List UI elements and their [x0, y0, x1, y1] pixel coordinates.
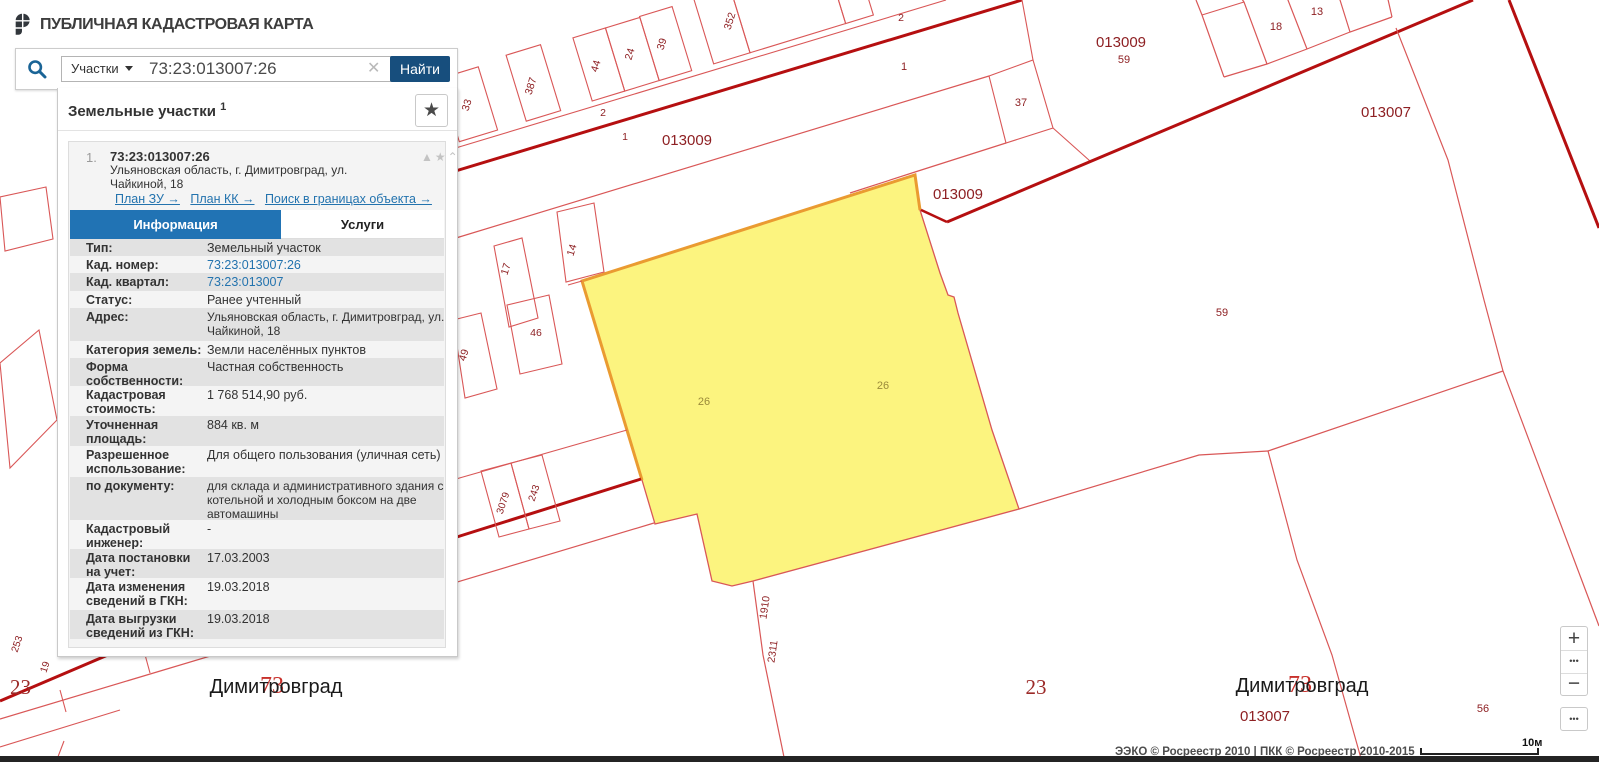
svg-text:1910: 1910: [757, 595, 772, 620]
svg-text:17: 17: [499, 262, 514, 277]
svg-text:24: 24: [623, 47, 638, 62]
svg-text:14: 14: [565, 243, 580, 258]
svg-text:39: 39: [655, 37, 670, 52]
svg-text:253: 253: [10, 634, 26, 654]
svg-text:19: 19: [39, 660, 53, 674]
svg-text:23: 23: [10, 675, 31, 699]
svg-text:013007: 013007: [1361, 104, 1411, 121]
svg-text:Димитровград: Димитровград: [210, 676, 343, 698]
svg-text:56: 56: [1477, 703, 1489, 715]
svg-text:44: 44: [589, 59, 604, 74]
svg-text:2: 2: [600, 107, 606, 119]
svg-text:59: 59: [1118, 54, 1130, 66]
svg-text:37: 37: [1015, 97, 1027, 109]
svg-text:46: 46: [530, 327, 542, 339]
svg-text:2: 2: [898, 12, 904, 24]
svg-text:Димитровград: Димитровград: [1236, 675, 1369, 697]
svg-text:3079: 3079: [495, 491, 512, 516]
svg-text:49: 49: [457, 348, 472, 363]
svg-text:1: 1: [901, 61, 907, 73]
svg-text:33: 33: [460, 98, 475, 113]
svg-text:26: 26: [877, 380, 889, 392]
svg-text:23: 23: [1026, 675, 1047, 699]
svg-text:013007: 013007: [1240, 708, 1290, 725]
svg-text:2311: 2311: [766, 639, 781, 663]
svg-text:18: 18: [1270, 21, 1282, 33]
svg-text:013009: 013009: [933, 186, 983, 203]
svg-text:26: 26: [698, 396, 710, 408]
svg-text:13: 13: [1311, 6, 1323, 18]
svg-text:013009: 013009: [1096, 34, 1146, 51]
svg-text:387: 387: [523, 76, 540, 96]
svg-text:243: 243: [527, 483, 543, 503]
svg-text:013009: 013009: [662, 132, 712, 149]
svg-text:352: 352: [722, 11, 739, 31]
svg-text:1: 1: [622, 131, 628, 143]
svg-text:59: 59: [1216, 307, 1228, 319]
